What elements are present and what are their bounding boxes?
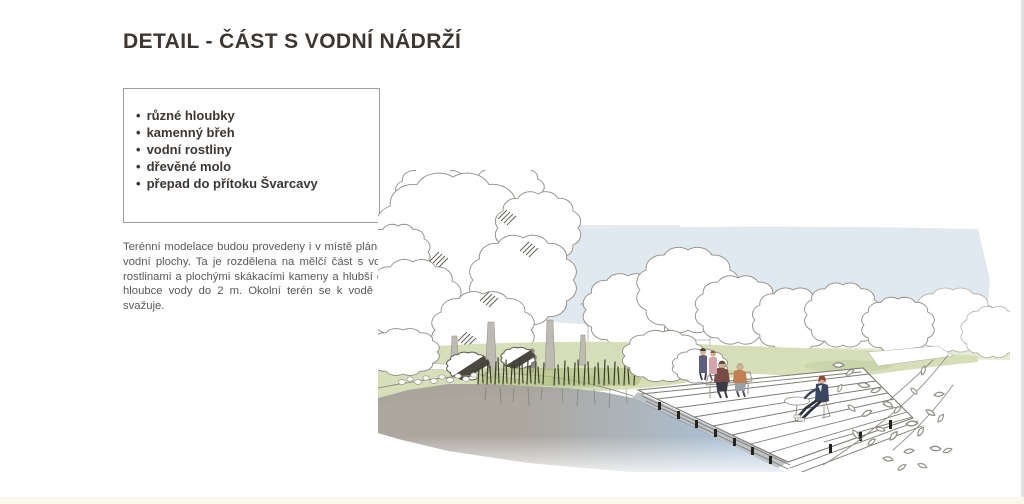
feature-item-label: různé hloubky	[147, 107, 235, 124]
bullet-icon: •	[136, 175, 141, 192]
feature-item: •přepad do přítoku Švarcavy	[136, 175, 369, 192]
bottom-edge-strip	[0, 497, 1024, 504]
feature-item-label: dřevěné molo	[147, 158, 232, 175]
bullet-icon: •	[136, 158, 141, 175]
bullet-icon: •	[136, 107, 141, 124]
slide: DETAIL - ČÁST S VODNÍ NÁDRŽÍ •různé hlou…	[0, 0, 1024, 504]
description-text: Terénní modelace budou provedeny i v mís…	[123, 240, 408, 314]
bullet-icon: •	[136, 124, 141, 141]
feature-item-label: kamenný břeh	[147, 124, 235, 141]
feature-item: •dřevěné molo	[136, 158, 369, 175]
feature-item-label: vodní rostliny	[147, 141, 232, 158]
feature-item: •různé hloubky	[136, 107, 369, 124]
feature-list: •různé hloubky •kamenný břeh •vodní rost…	[136, 107, 369, 192]
page-title: DETAIL - ČÁST S VODNÍ NÁDRŽÍ	[123, 30, 461, 54]
feature-item-label: přepad do přítoku Švarcavy	[147, 175, 318, 192]
park-sketch-illustration	[378, 170, 1010, 472]
feature-item: •kamenný břeh	[136, 124, 369, 141]
info-box: •různé hloubky •kamenný břeh •vodní rost…	[123, 88, 380, 223]
bullet-icon: •	[136, 141, 141, 158]
feature-item: •vodní rostliny	[136, 141, 369, 158]
